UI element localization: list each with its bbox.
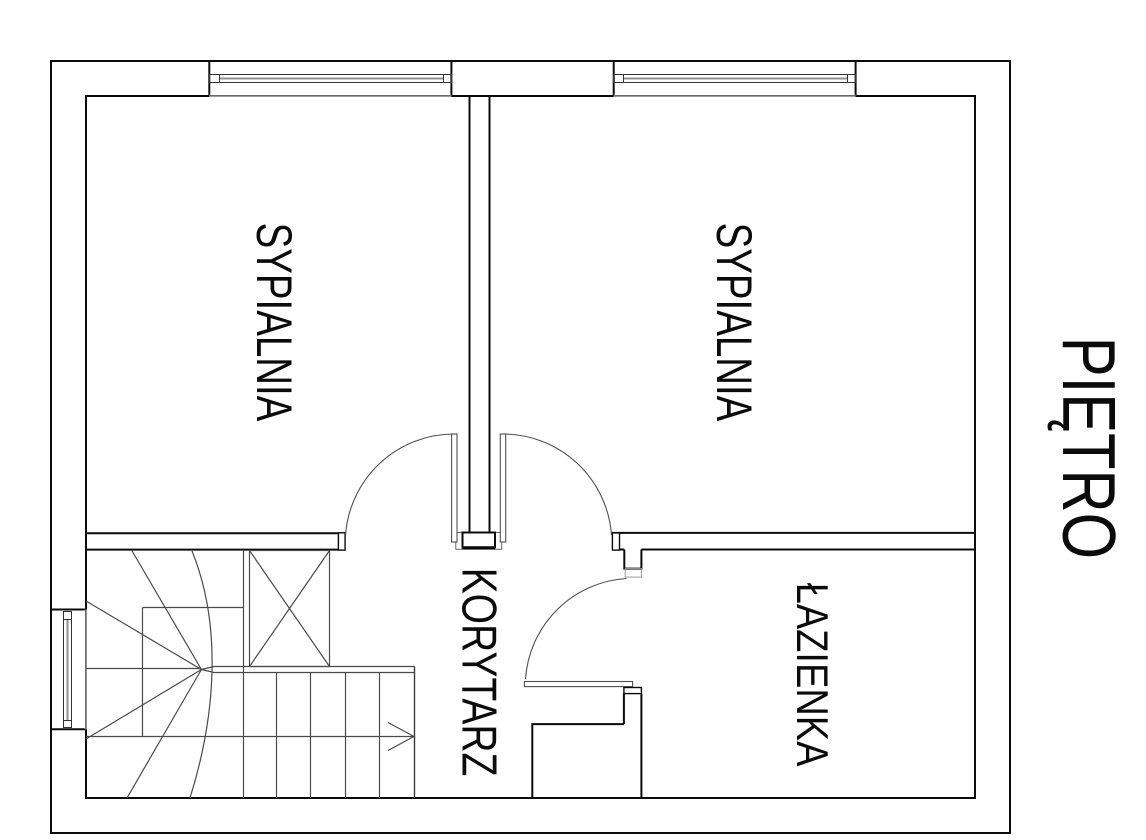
svg-text:PIĘTRO: PIĘTRO (1047, 337, 1131, 559)
svg-text:SYPIALNIA: SYPIALNIA (246, 223, 303, 422)
svg-text:KORYTARZ: KORYTARZ (451, 568, 505, 777)
svg-text:SYPIALNIA: SYPIALNIA (706, 223, 763, 422)
svg-text:ŁAZIENKA: ŁAZIENKA (787, 583, 837, 767)
